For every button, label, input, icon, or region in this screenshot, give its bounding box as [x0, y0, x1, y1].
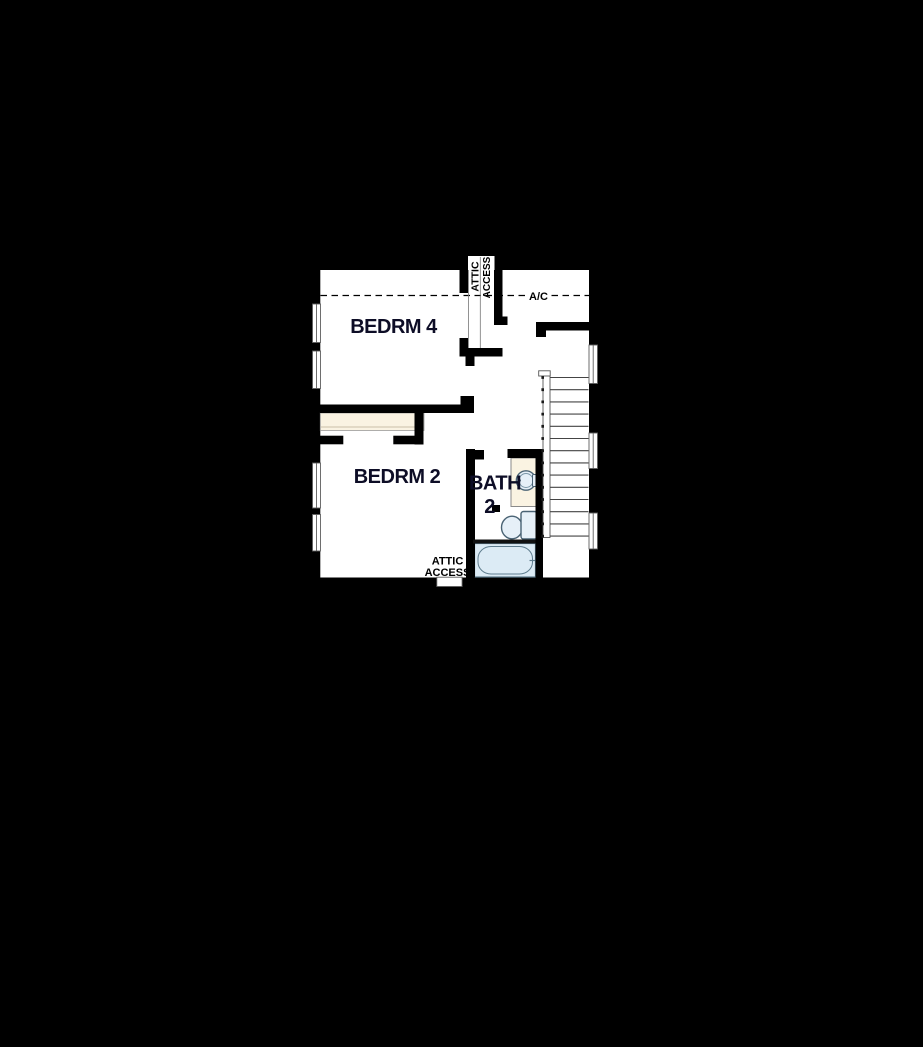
window-left-4 — [313, 515, 321, 552]
bedroom2-label: BEDRM 2 — [354, 466, 441, 488]
window-left-2 — [313, 351, 321, 389]
attic-access-top-label-line1: ATTIC — [470, 261, 482, 292]
closet-shelf — [320, 413, 424, 431]
tub-alcove-wall — [473, 540, 536, 544]
toilet-tank — [521, 512, 537, 540]
attic-access-top-label-line2: ACCESS — [482, 256, 493, 298]
attic-shaft-wall-left-upper — [460, 270, 469, 293]
window-right-2 — [589, 433, 598, 469]
stair-railing-top-cap — [539, 371, 551, 376]
bedroom2-closet — [320, 413, 424, 431]
window-left-3 — [313, 463, 321, 508]
ac-platform-wall-jamb — [536, 322, 546, 337]
ac-label: A/C — [529, 291, 548, 303]
bath2-label: BATH — [469, 473, 521, 495]
bedroom4-door-jamb — [466, 357, 475, 367]
attic-shaft-wall-right — [494, 270, 503, 325]
closet-front-wall-left — [320, 436, 343, 445]
stair-railing-stringer — [543, 373, 550, 538]
bedroom2-east-wall — [466, 449, 475, 578]
bedroom-divider-wall — [320, 405, 467, 414]
floor-plan-svg: BEDRM 4 BEDRM 2 BATH 2 A/C ATTIC ACCESS … — [0, 0, 923, 1047]
attic-shaft-wall-bottom — [460, 348, 503, 357]
closet-front-wall-right — [393, 436, 423, 445]
attic-access-bottom-label-line1: ATTIC — [432, 556, 464, 568]
bedroom-divider-end-cap — [461, 396, 475, 413]
window-right-1 — [589, 345, 598, 384]
bath2-number-label: 2 — [484, 496, 495, 518]
bath-east-wall — [536, 449, 544, 578]
bedroom4-label: BEDRM 4 — [350, 316, 438, 338]
screenshot-page: BEDRM 4 BEDRM 2 BATH 2 A/C ATTIC ACCESS … — [0, 0, 923, 1047]
window-left-1 — [313, 304, 321, 343]
attic-shaft-wall-right-nub — [503, 317, 508, 326]
bath-door-jamb — [475, 450, 484, 460]
attic-access-bottom-label-line2: ACCESS — [425, 567, 471, 579]
toilet-bowl — [502, 516, 523, 539]
window-right-3 — [589, 513, 598, 549]
floor-plan: BEDRM 4 BEDRM 2 BATH 2 A/C ATTIC ACCESS … — [313, 256, 598, 587]
